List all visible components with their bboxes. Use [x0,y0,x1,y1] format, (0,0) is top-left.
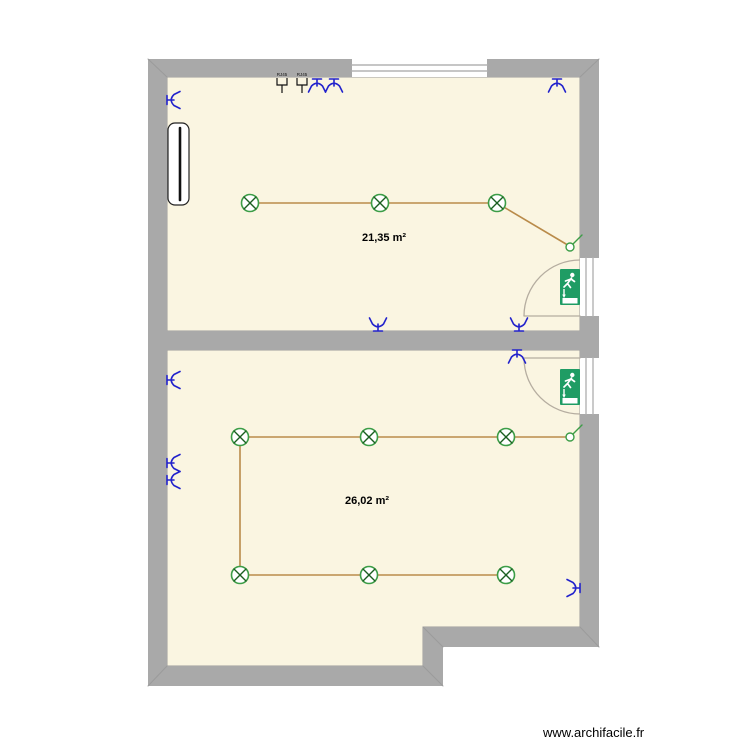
rj45-label: RJ45 [297,72,308,77]
watermark: www.archifacile.fr [543,725,644,740]
wall-left[interactable] [148,59,167,686]
wall-right[interactable] [580,59,599,647]
floor-plan-canvas[interactable]: RJ45RJ45 21,35 m²26,02 m² www.archifacil… [0,0,750,750]
radiator[interactable] [168,123,189,205]
room-area-label: 21,35 m² [362,232,406,244]
room-area-label: 26,02 m² [345,495,389,507]
ceiling-light[interactable] [232,429,249,446]
exit-sign-runner [570,373,574,377]
exit-sign[interactable] [560,369,580,405]
wall-notch-side[interactable] [423,627,443,686]
wall-notch-bottom[interactable] [423,627,599,647]
floor-plan-drawing: RJ45RJ45 [0,0,750,750]
exit-sign-runner [570,273,574,277]
exit-sign-panel [563,298,578,304]
exit-sign[interactable] [560,269,580,305]
ceiling-light[interactable] [489,195,506,212]
ceiling-light[interactable] [498,429,515,446]
ceiling-light[interactable] [361,429,378,446]
window[interactable] [352,59,487,77]
ceiling-light[interactable] [232,567,249,584]
wall-bottom[interactable] [148,666,443,686]
wall-middle[interactable] [167,331,580,350]
rj45-label: RJ45 [277,72,288,77]
exit-sign-panel [563,398,578,404]
ceiling-light[interactable] [242,195,259,212]
ceiling-light[interactable] [372,195,389,212]
ceiling-light[interactable] [498,567,515,584]
ceiling-light[interactable] [361,567,378,584]
floor-room-2[interactable] [167,350,580,666]
